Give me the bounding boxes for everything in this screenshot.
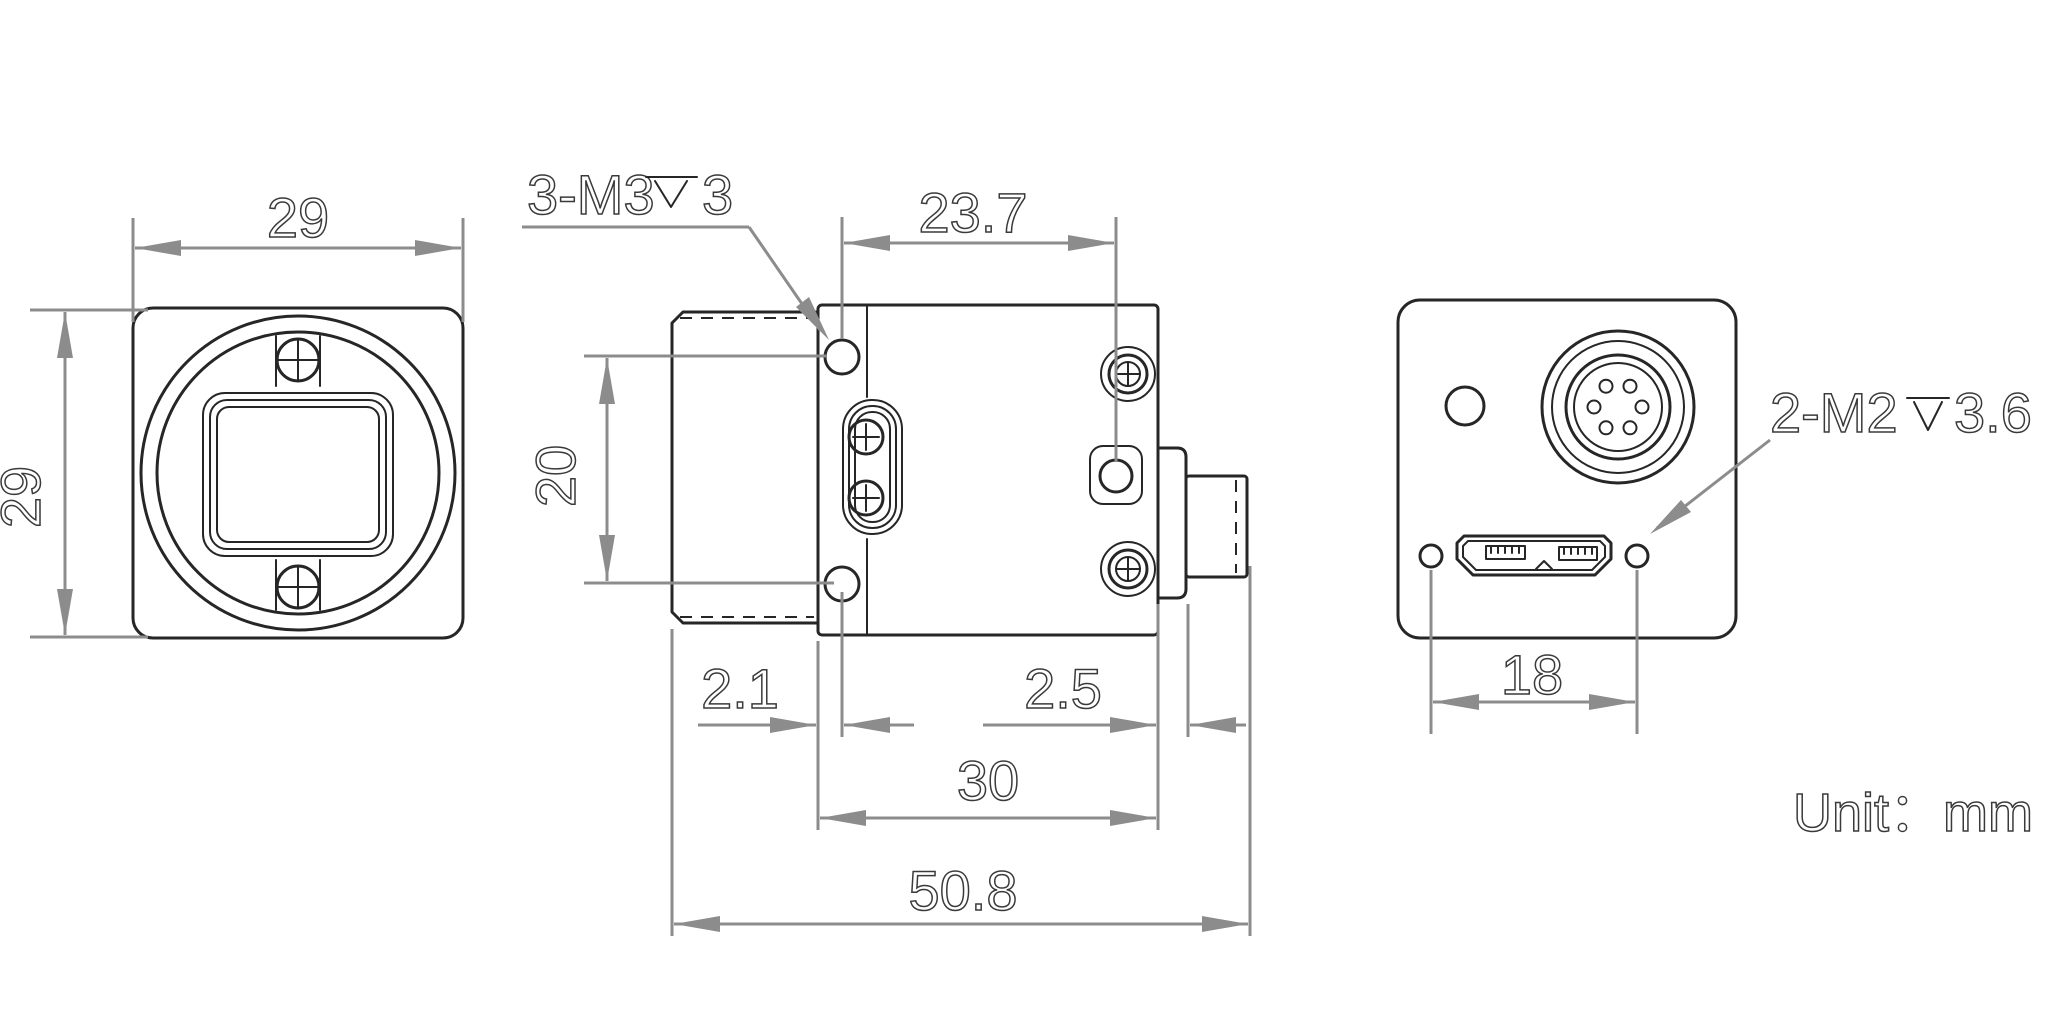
back-thread-prefix: 2-M2 — [1770, 381, 1898, 444]
depth-symbol-icon — [1907, 398, 1949, 430]
arrowhead-icon — [415, 240, 461, 256]
dim-front-height: 29 — [0, 310, 148, 637]
front-view — [133, 308, 463, 638]
front-screw-top — [276, 336, 320, 386]
label-back-thread: 2-M2 3.6 — [1650, 381, 2032, 534]
boss-screw-upper — [849, 420, 883, 454]
dim-text-front-width: 29 — [267, 186, 329, 249]
arrowhead-icon — [1589, 694, 1635, 710]
m2-hole-left — [1420, 545, 1442, 567]
back-view — [1398, 300, 1736, 638]
unit-label: Unit：mm — [1793, 783, 2033, 843]
arrowhead-icon — [1190, 717, 1236, 733]
arrowhead-icon — [599, 358, 615, 404]
technical-drawing-canvas: 29 29 — [0, 0, 2048, 1024]
m8-circular-connector — [1542, 331, 1694, 483]
back-thread-suffix: 3.6 — [1954, 381, 2032, 444]
arrowhead-icon — [1068, 235, 1114, 251]
dim-side-front-offset: 2.1 — [698, 592, 914, 830]
boss-screw-lower — [849, 481, 883, 515]
m2-hole-right — [1626, 545, 1648, 567]
side-thread-prefix: 3-M3 — [527, 163, 655, 226]
rear-plate-profile — [1158, 448, 1186, 598]
dim-text-front-height: 29 — [0, 466, 52, 528]
led-indicator — [1446, 387, 1484, 425]
micro-usb3-port — [1457, 536, 1611, 575]
leader-arrowhead-icon — [1650, 500, 1691, 534]
camera-dimension-drawing: 29 29 — [0, 0, 2048, 1024]
arrowhead-icon — [674, 916, 720, 932]
m3-hole-top — [825, 340, 859, 374]
arrowhead-icon — [844, 235, 890, 251]
arrowhead-icon — [820, 810, 866, 826]
arrowhead-icon — [844, 717, 890, 733]
arrowhead-icon — [1110, 717, 1156, 733]
dim-text-side-rear-plate: 2.5 — [1024, 657, 1102, 720]
sensor-window — [203, 393, 393, 556]
dim-text-side-hole-span: 23.7 — [919, 181, 1028, 244]
dim-text-side-body-width: 30 — [957, 749, 1019, 812]
arrowhead-icon — [135, 240, 181, 256]
side-thread-suffix: 3 — [702, 163, 733, 226]
dim-text-back-hole-span: 18 — [1501, 643, 1563, 706]
arrowhead-icon — [1202, 916, 1248, 932]
side-screw-top-right — [1101, 347, 1155, 401]
arrowhead-icon — [1433, 694, 1479, 710]
lens-barrel-outline — [672, 312, 818, 623]
arrowhead-icon — [57, 312, 73, 358]
arrowhead-icon — [599, 535, 615, 581]
leader-arrowhead-icon — [796, 297, 829, 340]
usb-connector-profile — [1186, 476, 1247, 577]
dim-text-side-hole-vertical: 20 — [524, 445, 587, 507]
dim-side-hole-span: 23.7 — [842, 181, 1116, 461]
dim-text-side-total-length: 50.8 — [909, 859, 1018, 922]
side-screw-bottom-right — [1101, 542, 1155, 596]
dim-front-width: 29 — [133, 186, 463, 322]
dim-side-hole-vertical: 20 — [524, 356, 834, 583]
dim-text-side-front-offset: 2.1 — [701, 657, 779, 720]
dim-side-body-width: 30 — [820, 749, 1156, 826]
front-screw-bottom — [276, 560, 320, 610]
dim-back-hole-span: 18 — [1431, 570, 1637, 734]
arrowhead-icon — [57, 589, 73, 635]
dim-side-rear-plate: 2.5 — [983, 604, 1246, 830]
arrowhead-icon — [1110, 810, 1156, 826]
